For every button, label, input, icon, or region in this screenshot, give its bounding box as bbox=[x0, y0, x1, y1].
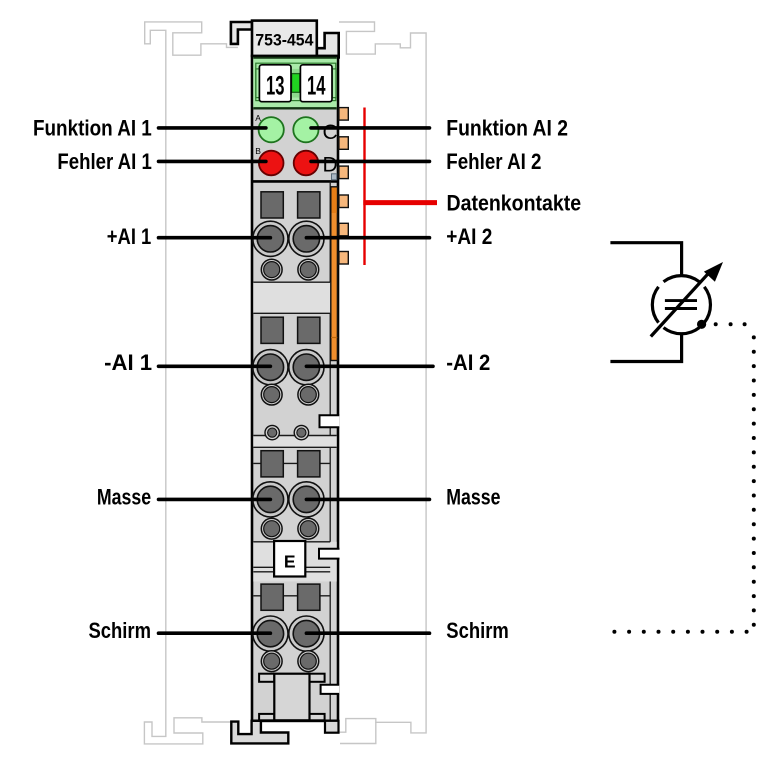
svg-text:B: B bbox=[255, 146, 261, 156]
svg-text:A: A bbox=[255, 113, 261, 123]
svg-text:-AI 1: -AI 1 bbox=[104, 350, 152, 375]
svg-text:Masse: Masse bbox=[97, 484, 151, 509]
svg-text:Fehler AI 2: Fehler AI 2 bbox=[446, 149, 541, 174]
svg-text:Funktion AI 1: Funktion AI 1 bbox=[33, 115, 152, 140]
svg-text:Schirm: Schirm bbox=[446, 618, 509, 643]
svg-text:14: 14 bbox=[307, 71, 326, 101]
svg-text:+AI 2: +AI 2 bbox=[446, 224, 492, 249]
svg-text:D: D bbox=[323, 153, 338, 176]
svg-text:Schirm: Schirm bbox=[89, 618, 152, 643]
svg-text:Masse: Masse bbox=[446, 484, 500, 509]
svg-text:Datenkontakte: Datenkontakte bbox=[447, 191, 582, 216]
svg-text:753-454: 753-454 bbox=[255, 31, 314, 49]
svg-text:13: 13 bbox=[266, 71, 285, 101]
svg-text:Funktion AI 2: Funktion AI 2 bbox=[446, 115, 568, 140]
svg-text:+AI 1: +AI 1 bbox=[107, 224, 152, 249]
svg-text:-AI 2: -AI 2 bbox=[446, 350, 490, 375]
svg-text:Fehler AI 1: Fehler AI 1 bbox=[57, 149, 151, 174]
svg-text:C: C bbox=[323, 121, 338, 144]
svg-text:E: E bbox=[284, 551, 296, 571]
